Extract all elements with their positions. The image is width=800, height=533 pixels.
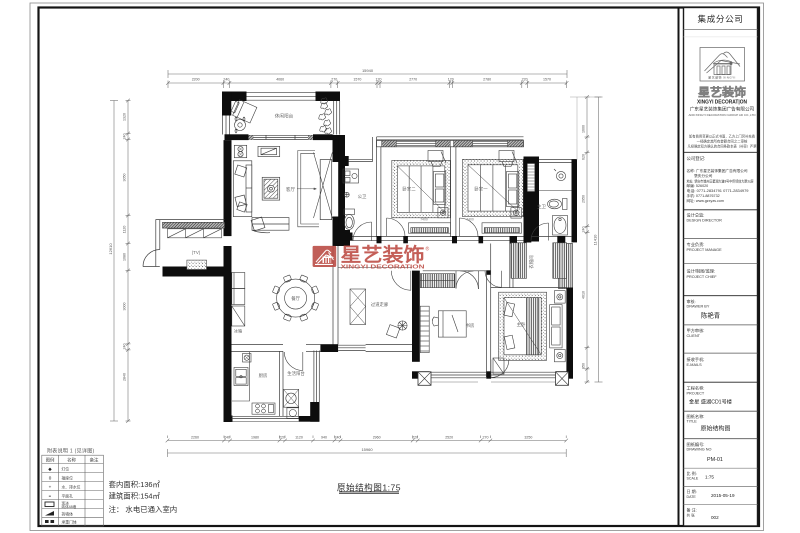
svg-text:DRAWING NO: DRAWING NO [687, 448, 712, 452]
svg-text:ADD:XINGYI DECORATION GROUP AD: ADD:XINGYI DECORATION GROUP AD CO.,LTD [688, 113, 756, 117]
svg-text:XINGYI DECORATION: XINGYI DECORATION [341, 265, 425, 271]
svg-text:7400: 7400 [420, 218, 428, 222]
svg-text:原始结构图: 原始结构图 [701, 425, 731, 433]
svg-text:002: 002 [711, 515, 719, 520]
svg-text:书房: 书房 [466, 322, 475, 329]
svg-text:如有费用变更以正式书面，乙方上门另补充费: 如有费用变更以正式书面，乙方上门另补充费 [689, 133, 756, 138]
svg-text:休闲阳台: 休闲阳台 [275, 113, 294, 120]
svg-text:灯位: 灯位 [62, 467, 70, 472]
svg-text:11410: 11410 [593, 234, 598, 246]
svg-text:餐厅: 餐厅 [291, 295, 300, 302]
svg-text:主卫: 主卫 [537, 203, 546, 209]
svg-text:金星 盛湖CD1号楼: 金星 盛湖CD1号楼 [689, 397, 732, 405]
svg-text:肇庆分公司: 肇庆分公司 [694, 173, 713, 178]
svg-text:凡经确定双方确认的合同条款本表（补审）严禁: 凡经确定双方确认的合同条款本表（补审）严禁 [688, 143, 758, 148]
svg-text:SCALE: SCALE [687, 477, 699, 481]
svg-text:设计总监:: 设计总监: [687, 211, 705, 218]
svg-text:生活阳台: 生活阳台 [287, 370, 305, 377]
svg-text:240: 240 [123, 344, 127, 350]
svg-text:1080: 1080 [123, 253, 127, 261]
svg-text:广东星艺装饰集团广告有限公司: 广东星艺装饰集团广告有限公司 [690, 106, 755, 113]
svg-text:星艺装饰 XINGYI: 星艺装饰 XINGYI [708, 75, 735, 80]
svg-text:共 张: 共 张 [687, 512, 696, 517]
svg-text:≡: ≡ [49, 494, 52, 499]
svg-text:一经确定其所有金额合同之二审核: 一经确定其所有金额合同之二审核 [697, 138, 748, 143]
svg-text:1:75: 1:75 [705, 475, 714, 480]
svg-text:15960: 15960 [361, 447, 373, 452]
svg-text:PROJECT: PROJECT [687, 391, 705, 395]
svg-text:2260: 2260 [191, 435, 199, 439]
svg-text:水、排水位: 水、排水位 [62, 485, 81, 490]
svg-text:套内面积:136㎡: 套内面积:136㎡ [109, 480, 161, 489]
svg-text:1120: 1120 [295, 435, 303, 439]
svg-text:2015-05-19: 2015-05-19 [711, 493, 735, 498]
svg-text:平面孔: 平面孔 [62, 494, 74, 499]
svg-text:220: 220 [412, 435, 418, 439]
svg-text:2780: 2780 [483, 78, 491, 82]
svg-text:原始结构图1:75: 原始结构图1:75 [337, 481, 401, 492]
svg-text:承重门体: 承重门体 [62, 520, 77, 525]
svg-text:1570: 1570 [353, 78, 361, 82]
svg-text:2960: 2960 [373, 435, 381, 439]
svg-text:PM-01: PM-01 [707, 457, 723, 463]
svg-text:2950: 2950 [582, 195, 586, 203]
svg-text:星艺装饰: 星艺装饰 [698, 85, 747, 99]
svg-text:名称: 名称 [67, 457, 76, 464]
svg-text:◆: ◆ [48, 467, 52, 472]
svg-text:1570: 1570 [543, 78, 551, 82]
svg-text:120: 120 [376, 78, 382, 82]
svg-text:集成分公司: 集成分公司 [698, 13, 744, 24]
svg-text:2520: 2520 [445, 435, 453, 439]
svg-text:地址: 肇庆市端州区星湖大道8号中侨境信大厦3c层: 地址: 肇庆市端州区星湖大道8号中侨境信大厦3c层 [687, 178, 754, 183]
svg-text:拆墙体: 拆墙体 [62, 512, 74, 517]
svg-text:240: 240 [582, 227, 586, 233]
svg-text:1980: 1980 [251, 435, 259, 439]
svg-text:冰箱: 冰箱 [234, 328, 242, 335]
svg-text:邮编: 526020: 邮编: 526020 [687, 183, 709, 188]
svg-text:(TV): (TV) [192, 250, 201, 255]
svg-text:+: + [49, 485, 52, 490]
svg-text:2770: 2770 [409, 78, 417, 82]
svg-text:卧室二: 卧室二 [402, 186, 416, 193]
svg-text:1120: 1120 [123, 226, 127, 234]
svg-text:卧室一: 卧室一 [474, 186, 488, 193]
svg-text:手机: 0771-8876732: 手机: 0771-8876732 [687, 193, 720, 198]
svg-text:过道走廊: 过道走廊 [371, 301, 389, 308]
svg-text:2840: 2840 [123, 373, 127, 381]
svg-text:电话: 0771-2834791 0771-2834979: 电话: 0771-2834791 0771-2834979 [687, 188, 749, 193]
svg-text:星艺装饰: 星艺装饰 [341, 243, 425, 265]
svg-text:PROJECT MANAGE: PROJECT MANAGE [687, 248, 723, 252]
svg-text:插座位: 插座位 [62, 476, 74, 481]
svg-text:940: 940 [321, 435, 327, 439]
svg-text:公司登记:: 公司登记: [687, 155, 706, 161]
svg-text:E-MAILS: E-MAILS [687, 363, 703, 367]
svg-text:2200: 2200 [192, 78, 200, 82]
svg-text:附表说明 1 (见详图): 附表说明 1 (见详图) [47, 448, 95, 455]
svg-text:0: 0 [49, 476, 52, 481]
svg-text:名称: 广东星艺装饰集团广告有限公司: 名称: 广东星艺装饰集团广告有限公司 [687, 168, 748, 173]
svg-text:主卧: 主卧 [517, 321, 526, 328]
svg-text:图例: 图例 [46, 457, 55, 464]
svg-text:1320: 1320 [123, 113, 127, 121]
svg-text:240: 240 [224, 435, 230, 439]
svg-text:12610: 12610 [108, 243, 113, 255]
svg-text:砖体48墙: 砖体48墙 [62, 504, 77, 509]
svg-text:850: 850 [582, 363, 586, 369]
svg-text:620: 620 [582, 154, 586, 160]
svg-text:XINGYI DECORAT|ON: XINGYI DECORAT|ON [697, 100, 747, 106]
svg-text:注： 水电已通入室内: 注： 水电已通入室内 [109, 505, 178, 514]
svg-text:240: 240 [123, 134, 127, 140]
svg-text:120: 120 [448, 78, 454, 82]
svg-text:220: 220 [279, 435, 285, 439]
svg-text:设计/制图/监理:: 设计/制图/监理: [687, 268, 716, 275]
svg-text:1600: 1600 [582, 125, 586, 133]
svg-text:4060: 4060 [276, 78, 284, 82]
svg-text:4610: 4610 [582, 291, 586, 299]
svg-text:网址: www.gzxyzs.com: 网址: www.gzxyzs.com [687, 198, 725, 203]
svg-text:240: 240 [223, 78, 229, 82]
svg-text:PROJECT CHIEF: PROJECT CHIEF [687, 275, 718, 279]
svg-text:220: 220 [522, 78, 528, 82]
svg-text:厨房: 厨房 [259, 372, 268, 379]
svg-text:审核:: 审核: [687, 298, 696, 304]
svg-text:3050: 3050 [123, 174, 127, 182]
svg-text:3000: 3000 [123, 303, 127, 311]
svg-text:15940: 15940 [362, 68, 374, 73]
svg-text:CLIENT: CLIENT [687, 334, 701, 338]
svg-text:衣帽间: 衣帽间 [528, 255, 535, 268]
svg-text:270: 270 [331, 78, 337, 82]
svg-text:建筑面积:154㎡: 建筑面积:154㎡ [109, 491, 161, 500]
svg-text:公卫: 公卫 [358, 194, 367, 199]
svg-text:备注: 备注 [90, 457, 99, 464]
svg-text:备 注:: 备 注: [687, 507, 697, 513]
svg-text:®: ® [426, 246, 430, 253]
svg-text:240: 240 [335, 435, 341, 439]
svg-text:DESIGN DIRECTOR: DESIGN DIRECTOR [687, 218, 723, 222]
svg-text:客厅: 客厅 [286, 186, 296, 193]
svg-text:比 例:: 比 例: [687, 470, 697, 476]
svg-text:TITLE: TITLE [687, 419, 698, 423]
svg-text:DRAWER BY: DRAWER BY [687, 305, 710, 309]
svg-text:日 期:: 日 期: [687, 488, 697, 494]
svg-text:3250: 3250 [524, 435, 532, 439]
svg-text:陈艳青: 陈艳青 [701, 311, 721, 320]
svg-text:DATE: DATE [687, 495, 697, 499]
svg-text:270: 270 [483, 435, 489, 439]
